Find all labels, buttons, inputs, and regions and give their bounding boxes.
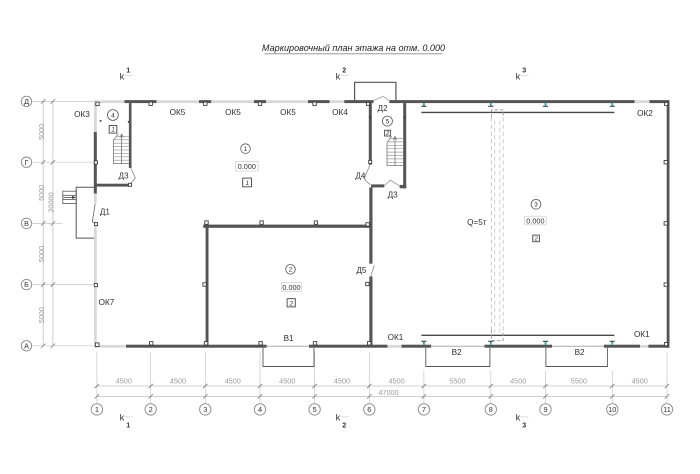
svg-text:Д: Д — [24, 97, 29, 106]
svg-text:k: k — [516, 411, 521, 422]
svg-text:4500: 4500 — [170, 376, 186, 385]
svg-text:5: 5 — [386, 119, 390, 126]
svg-text:5000: 5000 — [37, 246, 46, 262]
svg-text:4: 4 — [111, 112, 115, 119]
svg-text:В: В — [24, 219, 29, 228]
svg-text:4500: 4500 — [632, 376, 648, 385]
svg-text:В2: В2 — [575, 348, 585, 357]
svg-text:4: 4 — [258, 405, 262, 414]
svg-text:2: 2 — [149, 405, 153, 414]
svg-text:Б: Б — [24, 280, 29, 289]
svg-text:2: 2 — [385, 131, 389, 137]
svg-text:ОК5: ОК5 — [280, 108, 296, 117]
svg-text:0.000: 0.000 — [282, 283, 300, 292]
svg-text:9: 9 — [543, 405, 547, 414]
svg-text:2: 2 — [289, 267, 293, 274]
svg-text:Д1: Д1 — [100, 207, 111, 216]
svg-text:1: 1 — [95, 405, 99, 414]
svg-text:k: k — [120, 71, 125, 82]
svg-text:3: 3 — [203, 405, 207, 414]
svg-text:47000: 47000 — [378, 388, 398, 397]
svg-text:ОК3: ОК3 — [74, 110, 90, 119]
svg-text:k: k — [336, 411, 341, 422]
svg-text:3: 3 — [522, 420, 526, 429]
svg-text:5500: 5500 — [449, 376, 465, 385]
svg-text:1: 1 — [244, 146, 248, 153]
svg-text:Q=5т: Q=5т — [467, 218, 487, 227]
svg-text:3: 3 — [522, 66, 526, 75]
svg-text:4500: 4500 — [334, 376, 350, 385]
svg-text:5: 5 — [313, 405, 317, 414]
svg-text:Маркировочный план этажа на от: Маркировочный план этажа на отм. 0.000 — [262, 43, 445, 53]
svg-text:Д3: Д3 — [388, 191, 399, 200]
svg-text:5000: 5000 — [37, 307, 46, 323]
svg-text:Д2: Д2 — [378, 104, 389, 113]
svg-text:1: 1 — [245, 180, 249, 187]
svg-text:ОК1: ОК1 — [634, 330, 650, 339]
svg-text:2: 2 — [288, 301, 293, 308]
svg-text:k: k — [516, 71, 521, 82]
svg-text:5500: 5500 — [571, 376, 587, 385]
svg-text:2: 2 — [342, 66, 346, 75]
svg-text:10: 10 — [608, 405, 616, 414]
svg-text:11: 11 — [663, 405, 671, 414]
svg-text:20000: 20000 — [47, 192, 56, 212]
svg-text:k: k — [120, 411, 125, 422]
svg-text:1: 1 — [111, 127, 114, 134]
svg-text:4500: 4500 — [116, 376, 132, 385]
svg-text:4500: 4500 — [510, 376, 526, 385]
svg-text:А: А — [24, 341, 29, 350]
svg-text:ОК4: ОК4 — [332, 108, 348, 117]
svg-text:В1: В1 — [284, 334, 294, 343]
svg-text:4500: 4500 — [388, 376, 404, 385]
svg-text:ОК2: ОК2 — [637, 109, 653, 118]
svg-text:4500: 4500 — [279, 376, 295, 385]
svg-text:1: 1 — [126, 420, 130, 429]
svg-text:7: 7 — [422, 405, 426, 414]
svg-text:ОК5: ОК5 — [225, 108, 241, 117]
svg-text:Д3: Д3 — [118, 172, 129, 181]
svg-text:Г: Г — [25, 158, 29, 167]
svg-text:ОК7: ОК7 — [99, 298, 115, 307]
svg-text:ОК5: ОК5 — [170, 108, 186, 117]
svg-text:k: k — [336, 71, 341, 82]
svg-text:0.000: 0.000 — [238, 162, 256, 171]
svg-text:5000: 5000 — [37, 185, 46, 201]
svg-text:Д5: Д5 — [356, 266, 367, 275]
svg-text:В2: В2 — [452, 348, 462, 357]
svg-text:6: 6 — [367, 405, 371, 414]
svg-text:Д4: Д4 — [355, 172, 366, 181]
svg-text:5000: 5000 — [37, 124, 46, 140]
svg-text:ОК1: ОК1 — [388, 333, 404, 342]
svg-text:3: 3 — [534, 202, 538, 209]
svg-text:2: 2 — [342, 420, 346, 429]
svg-text:8: 8 — [489, 405, 493, 414]
svg-text:4500: 4500 — [225, 376, 241, 385]
svg-text:0.000: 0.000 — [526, 216, 544, 225]
svg-text:1: 1 — [126, 66, 130, 75]
